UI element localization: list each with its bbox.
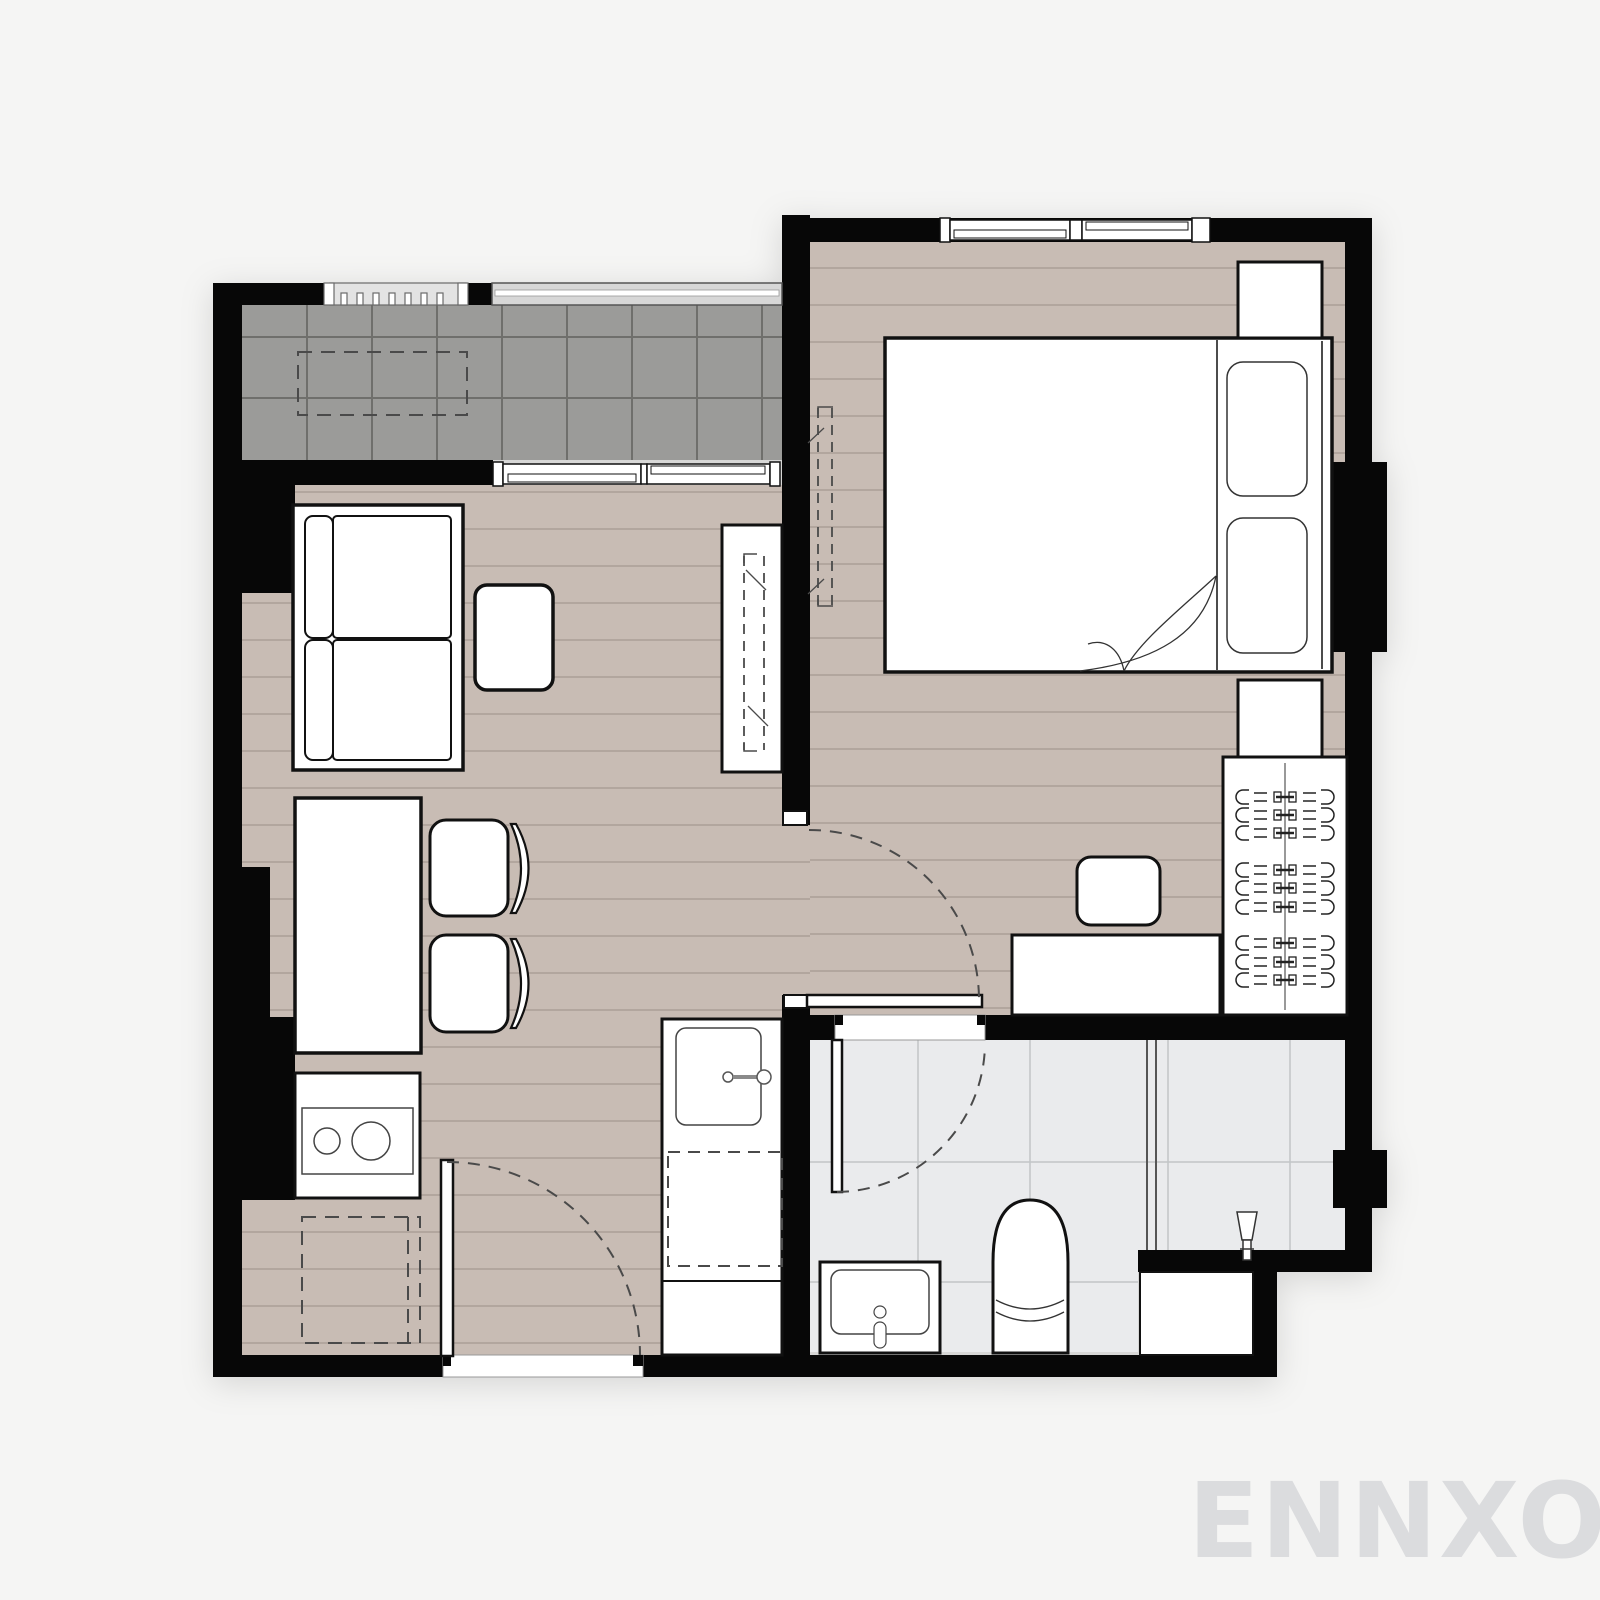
desk <box>1012 935 1220 1015</box>
bedroom-door-leaf <box>807 995 982 1007</box>
entrance-stop-right <box>633 1355 643 1366</box>
coffee-table <box>475 585 553 690</box>
parapet-wall-left <box>213 283 330 305</box>
ac-louver-frame <box>330 283 466 305</box>
service-niche <box>1140 1272 1253 1355</box>
bedroom-window-panel-1-glass <box>954 230 1066 238</box>
west-wall-mid <box>213 593 242 867</box>
shower-stem <box>1243 1240 1251 1260</box>
pillow-1 <box>1227 362 1307 496</box>
balcony-west-wall <box>213 283 242 460</box>
balcony-door-panel-1-glass <box>508 474 636 482</box>
bathroom-door-leaf <box>832 1040 842 1192</box>
stool <box>1077 857 1160 925</box>
balcony-door-mullion <box>641 464 647 484</box>
bedroom-window-panel-2-glass <box>1086 222 1188 230</box>
bedroom-door-hinge-cap <box>784 995 808 1008</box>
bathroom-door-stop-left <box>835 1015 843 1025</box>
partition-wall-lower <box>782 995 810 1377</box>
bathroom-faucet-dot <box>874 1306 886 1318</box>
tv-console <box>722 525 782 772</box>
east-wall-pier <box>1333 462 1387 652</box>
balcony-railing-band <box>495 290 779 296</box>
ac-louver-tooth <box>357 293 363 305</box>
dining-table <box>295 798 421 1053</box>
sofa-back-cushion-2 <box>305 640 333 760</box>
nightstand-2 <box>1238 680 1322 757</box>
bathroom-south-wall <box>1138 1250 1372 1272</box>
balcony-door-panel-2-glass <box>651 466 765 474</box>
bathroom-faucet-pill <box>874 1322 886 1348</box>
cooktop-burner-small <box>314 1128 340 1154</box>
floor-plan: ENNXO <box>0 0 1600 1600</box>
ac-louver-post-right <box>458 283 468 305</box>
balcony-south-wall <box>242 460 493 485</box>
cooktop-burner-large <box>352 1122 390 1160</box>
watermark-text: ENNXO <box>1188 1460 1600 1582</box>
kitchen-faucet-base <box>757 1070 771 1084</box>
sofa-back-cushion-1 <box>305 516 333 638</box>
ac-louver-tooth <box>421 293 427 305</box>
service-niche-east-wall <box>1253 1272 1277 1377</box>
dining-chair-1 <box>430 820 508 916</box>
balcony-door-jamb-right <box>770 462 780 486</box>
entrance-threshold <box>443 1355 643 1377</box>
entrance-door-leaf <box>441 1160 453 1356</box>
toilet <box>993 1200 1068 1353</box>
partition-wall-end-cap <box>783 811 807 825</box>
west-wall-lower <box>213 1200 242 1355</box>
balcony-floor <box>242 305 782 460</box>
ac-louver-tooth <box>437 293 443 305</box>
pillow-2 <box>1227 518 1307 653</box>
ac-louver-tooth <box>389 293 395 305</box>
floor-plan-canvas: ENNXO <box>0 0 1600 1600</box>
sofa-seat-1 <box>333 516 451 638</box>
nightstand-1 <box>1238 262 1322 338</box>
sofa-seat-2 <box>333 640 451 760</box>
ac-louver-tooth <box>373 293 379 305</box>
bathroom-east-pier <box>1333 1150 1387 1208</box>
ac-louver-tooth <box>405 293 411 305</box>
bedroom-window-jamb-right <box>1192 218 1210 242</box>
ac-louver-tooth <box>341 293 347 305</box>
west-pier-mid <box>213 867 270 1017</box>
dining-chair-2 <box>430 935 508 1032</box>
south-wall <box>213 1355 1277 1377</box>
bathroom-door-threshold <box>835 1015 985 1040</box>
bedroom-window-mullion <box>1070 220 1082 240</box>
west-pier-lower <box>213 1017 295 1200</box>
kitchen-faucet-handle <box>723 1072 733 1082</box>
parapet-wall-mid <box>466 283 492 305</box>
bathroom-door-stop-right <box>977 1015 985 1025</box>
plan-root <box>213 215 1387 1377</box>
bathroom-east-wall <box>1345 1040 1372 1250</box>
ac-louver-post-left <box>324 283 334 305</box>
partition-wall-upper <box>782 215 810 825</box>
bedroom-window-jamb-left <box>940 218 950 242</box>
balcony-door-jamb-left <box>493 462 503 486</box>
